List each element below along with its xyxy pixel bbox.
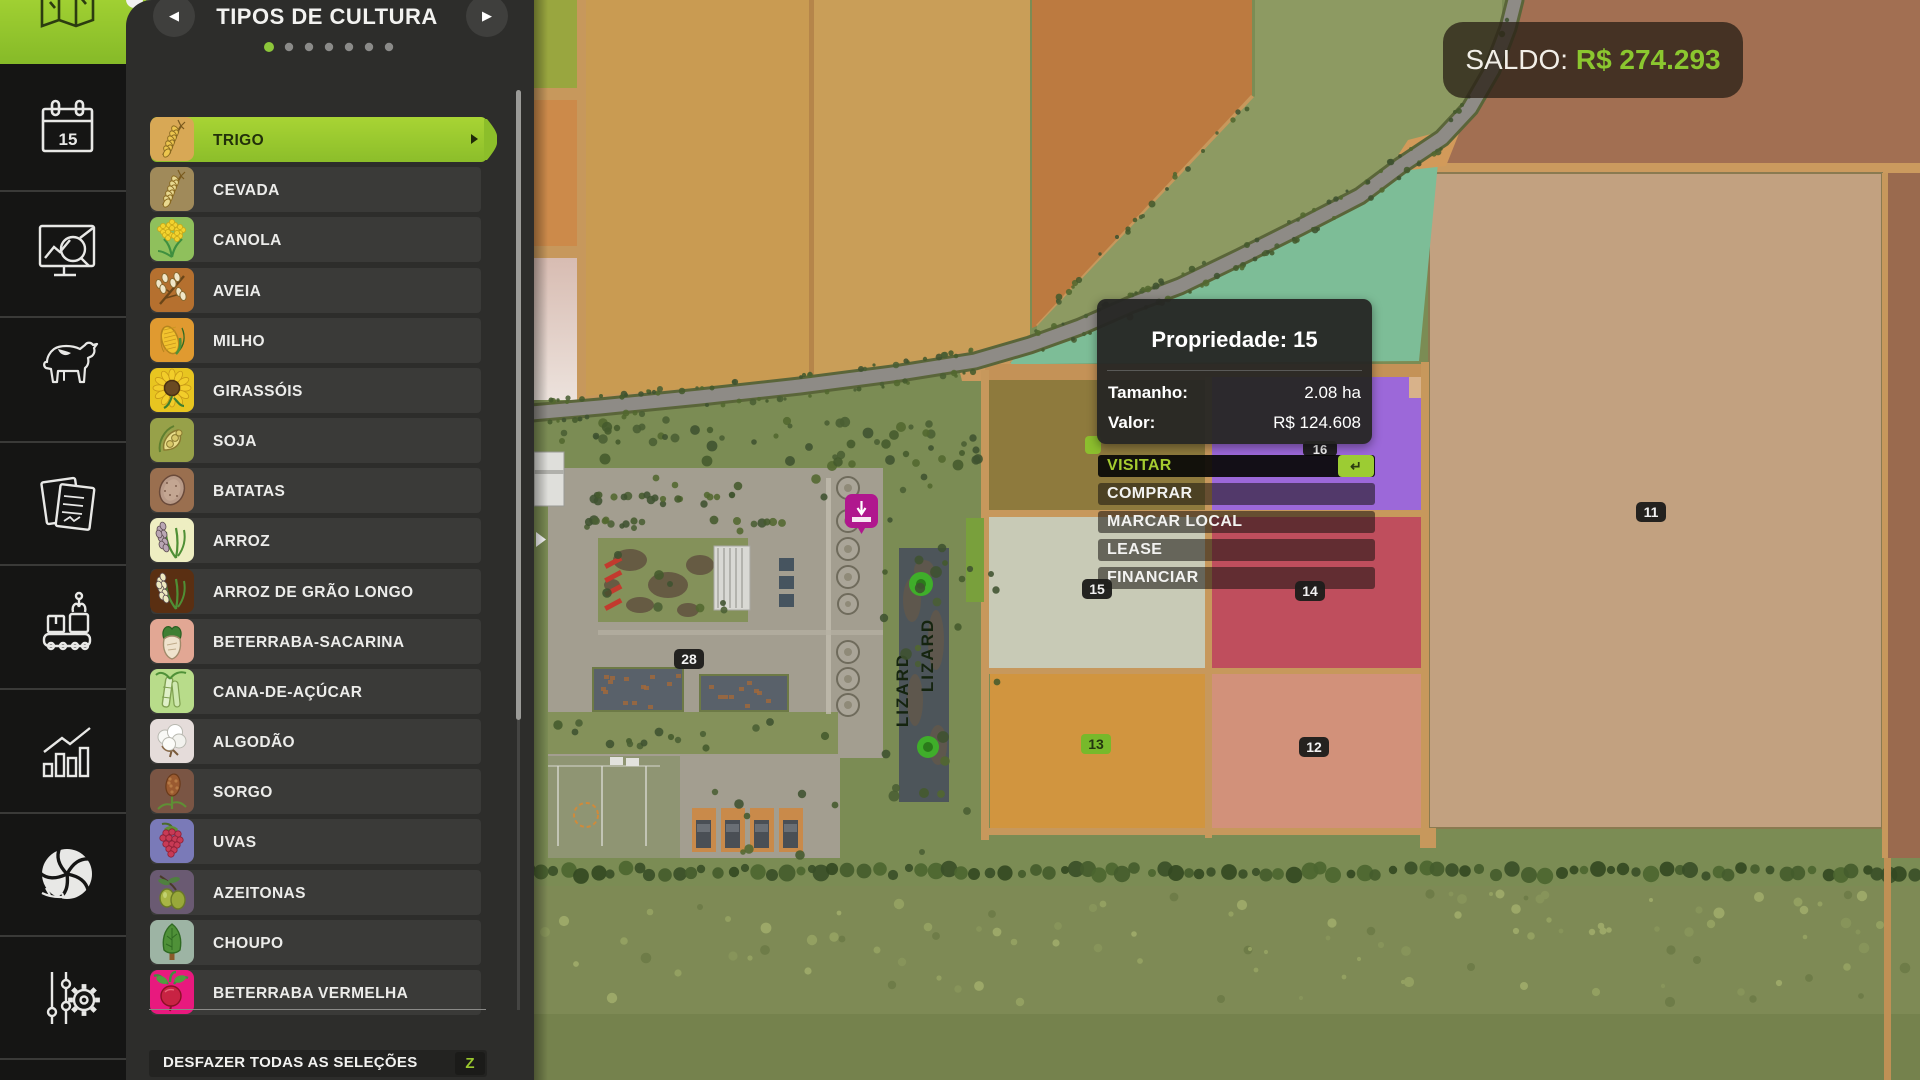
svg-text:28: 28 — [681, 651, 697, 667]
svg-text:15: 15 — [59, 130, 78, 149]
svg-text:12: 12 — [1306, 739, 1322, 755]
svg-text:11: 11 — [1644, 504, 1659, 520]
svg-text:13: 13 — [1088, 736, 1104, 752]
svg-text:LIZARD: LIZARD — [918, 618, 937, 692]
svg-text:LIZARD: LIZARD — [893, 653, 912, 727]
